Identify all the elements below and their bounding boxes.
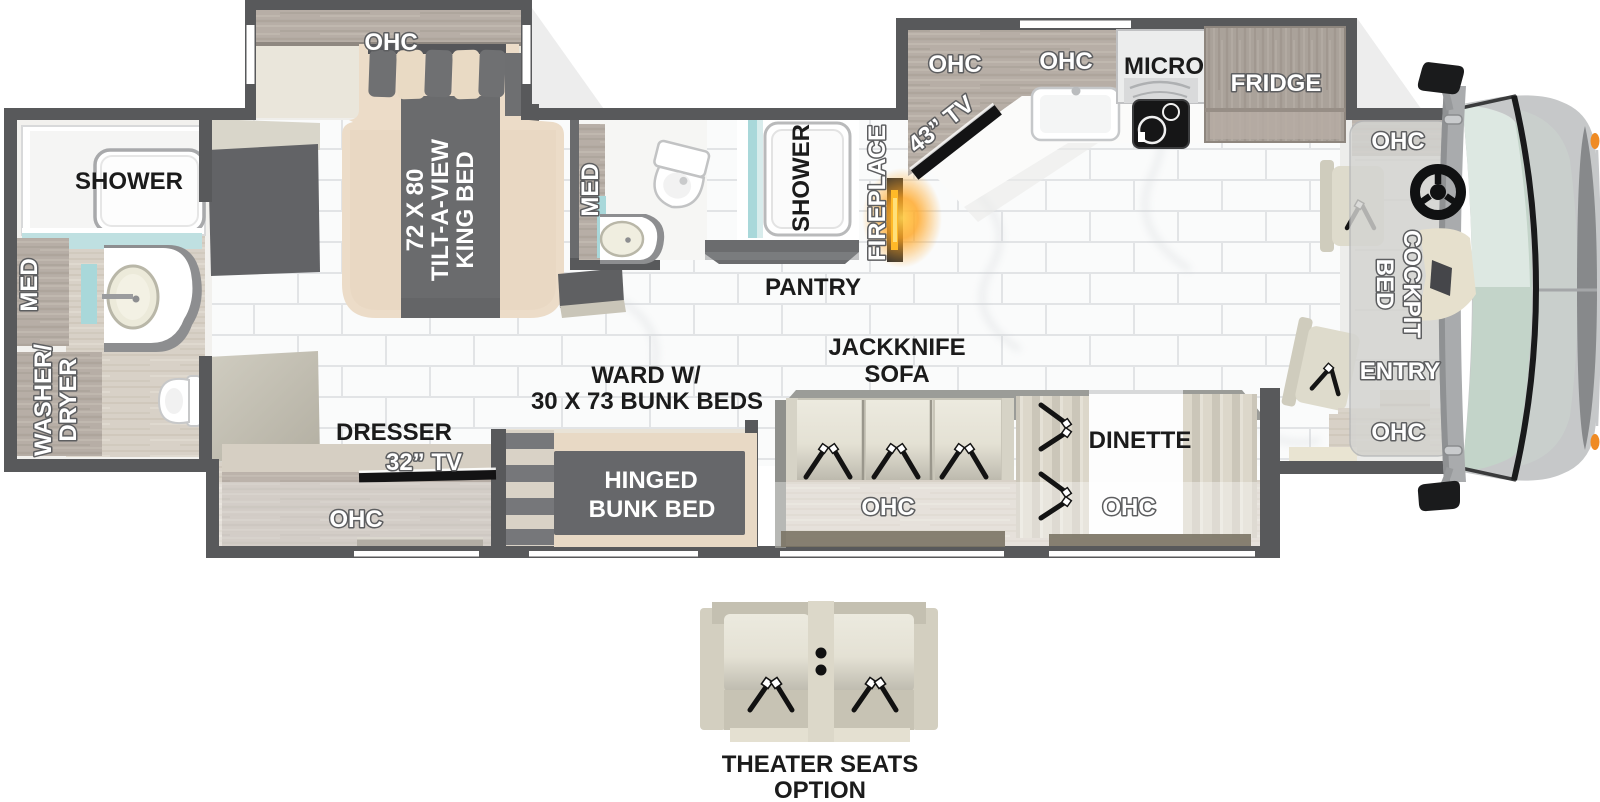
svg-text:BED: BED — [1371, 259, 1398, 310]
svg-text:DINETTE: DINETTE — [1089, 427, 1192, 454]
svg-text:SHOWER: SHOWER — [75, 168, 183, 195]
svg-text:DRESSER: DRESSER — [336, 419, 452, 446]
svg-text:30 X 73 BUNK BEDS: 30 X 73 BUNK BEDS — [531, 388, 763, 415]
svg-text:72 X 80: 72 X 80 — [402, 169, 429, 252]
svg-text:TILT-A-VIEW: TILT-A-VIEW — [427, 139, 454, 282]
svg-text:OPTION: OPTION — [774, 777, 866, 802]
svg-text:MED: MED — [16, 258, 43, 311]
svg-text:OHC: OHC — [1371, 128, 1424, 155]
svg-text:OHC: OHC — [1039, 48, 1092, 75]
svg-text:32” TV: 32” TV — [386, 449, 462, 476]
svg-text:HINGED: HINGED — [604, 467, 697, 494]
svg-text:OHC: OHC — [928, 51, 981, 78]
svg-text:OHC: OHC — [1371, 419, 1424, 446]
svg-text:ENTRY: ENTRY — [1360, 358, 1440, 385]
svg-text:OHC: OHC — [364, 29, 417, 56]
svg-text:FRIDGE: FRIDGE — [1231, 70, 1322, 97]
svg-text:OHC: OHC — [1102, 494, 1155, 521]
svg-text:OHC: OHC — [861, 494, 914, 521]
svg-text:WARD W/: WARD W/ — [591, 362, 701, 389]
svg-text:WASHER/: WASHER/ — [30, 344, 57, 456]
svg-text:OHC: OHC — [329, 506, 382, 533]
svg-text:COCKPIT: COCKPIT — [1398, 230, 1425, 338]
svg-text:MED: MED — [577, 163, 604, 216]
svg-text:JACKKNIFE: JACKKNIFE — [828, 334, 965, 361]
svg-text:PANTRY: PANTRY — [765, 274, 861, 301]
svg-text:MICRO: MICRO — [1124, 53, 1204, 80]
svg-text:BUNK BED: BUNK BED — [589, 496, 716, 523]
svg-text:SOFA: SOFA — [864, 361, 929, 388]
svg-text:SHOWER: SHOWER — [788, 124, 815, 232]
svg-text:KING BED: KING BED — [452, 151, 479, 268]
svg-text:THEATER SEATS: THEATER SEATS — [722, 751, 918, 778]
svg-text:DRYER: DRYER — [55, 358, 82, 441]
svg-text:FIREPLACE: FIREPLACE — [864, 125, 891, 261]
